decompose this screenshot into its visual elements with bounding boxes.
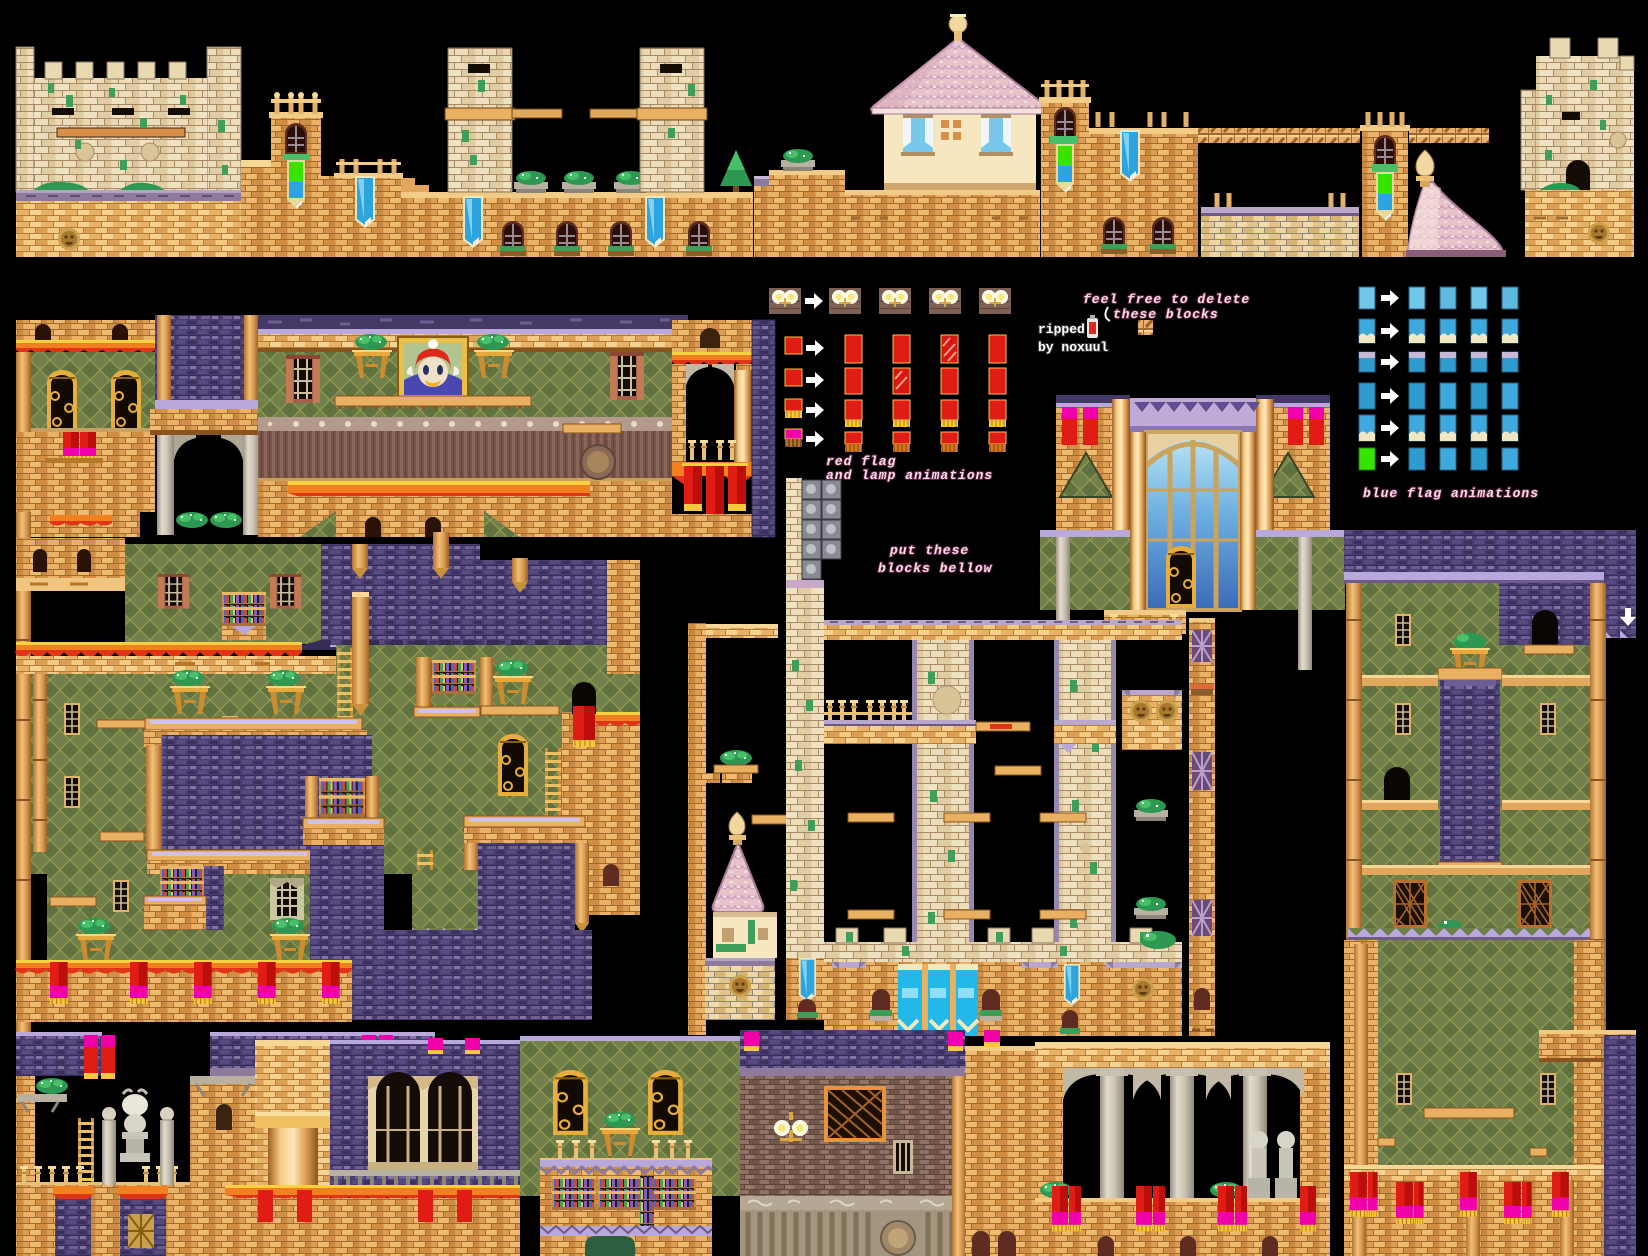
- svg-text:these blocks: these blocks: [1113, 307, 1219, 322]
- svg-text:blue flag animations: blue flag animations: [1363, 486, 1539, 501]
- svg-text:put these: put these: [889, 543, 969, 558]
- svg-text:by noxuul: by noxuul: [1038, 340, 1108, 355]
- svg-text:feel free to delete: feel free to delete: [1083, 292, 1250, 307]
- svg-text:ripped: ripped: [1038, 322, 1085, 337]
- svg-text:blocks bellow: blocks bellow: [878, 561, 993, 576]
- svg-text:red flag: red flag: [826, 454, 896, 469]
- svg-text:and lamp animations: and lamp animations: [826, 468, 993, 483]
